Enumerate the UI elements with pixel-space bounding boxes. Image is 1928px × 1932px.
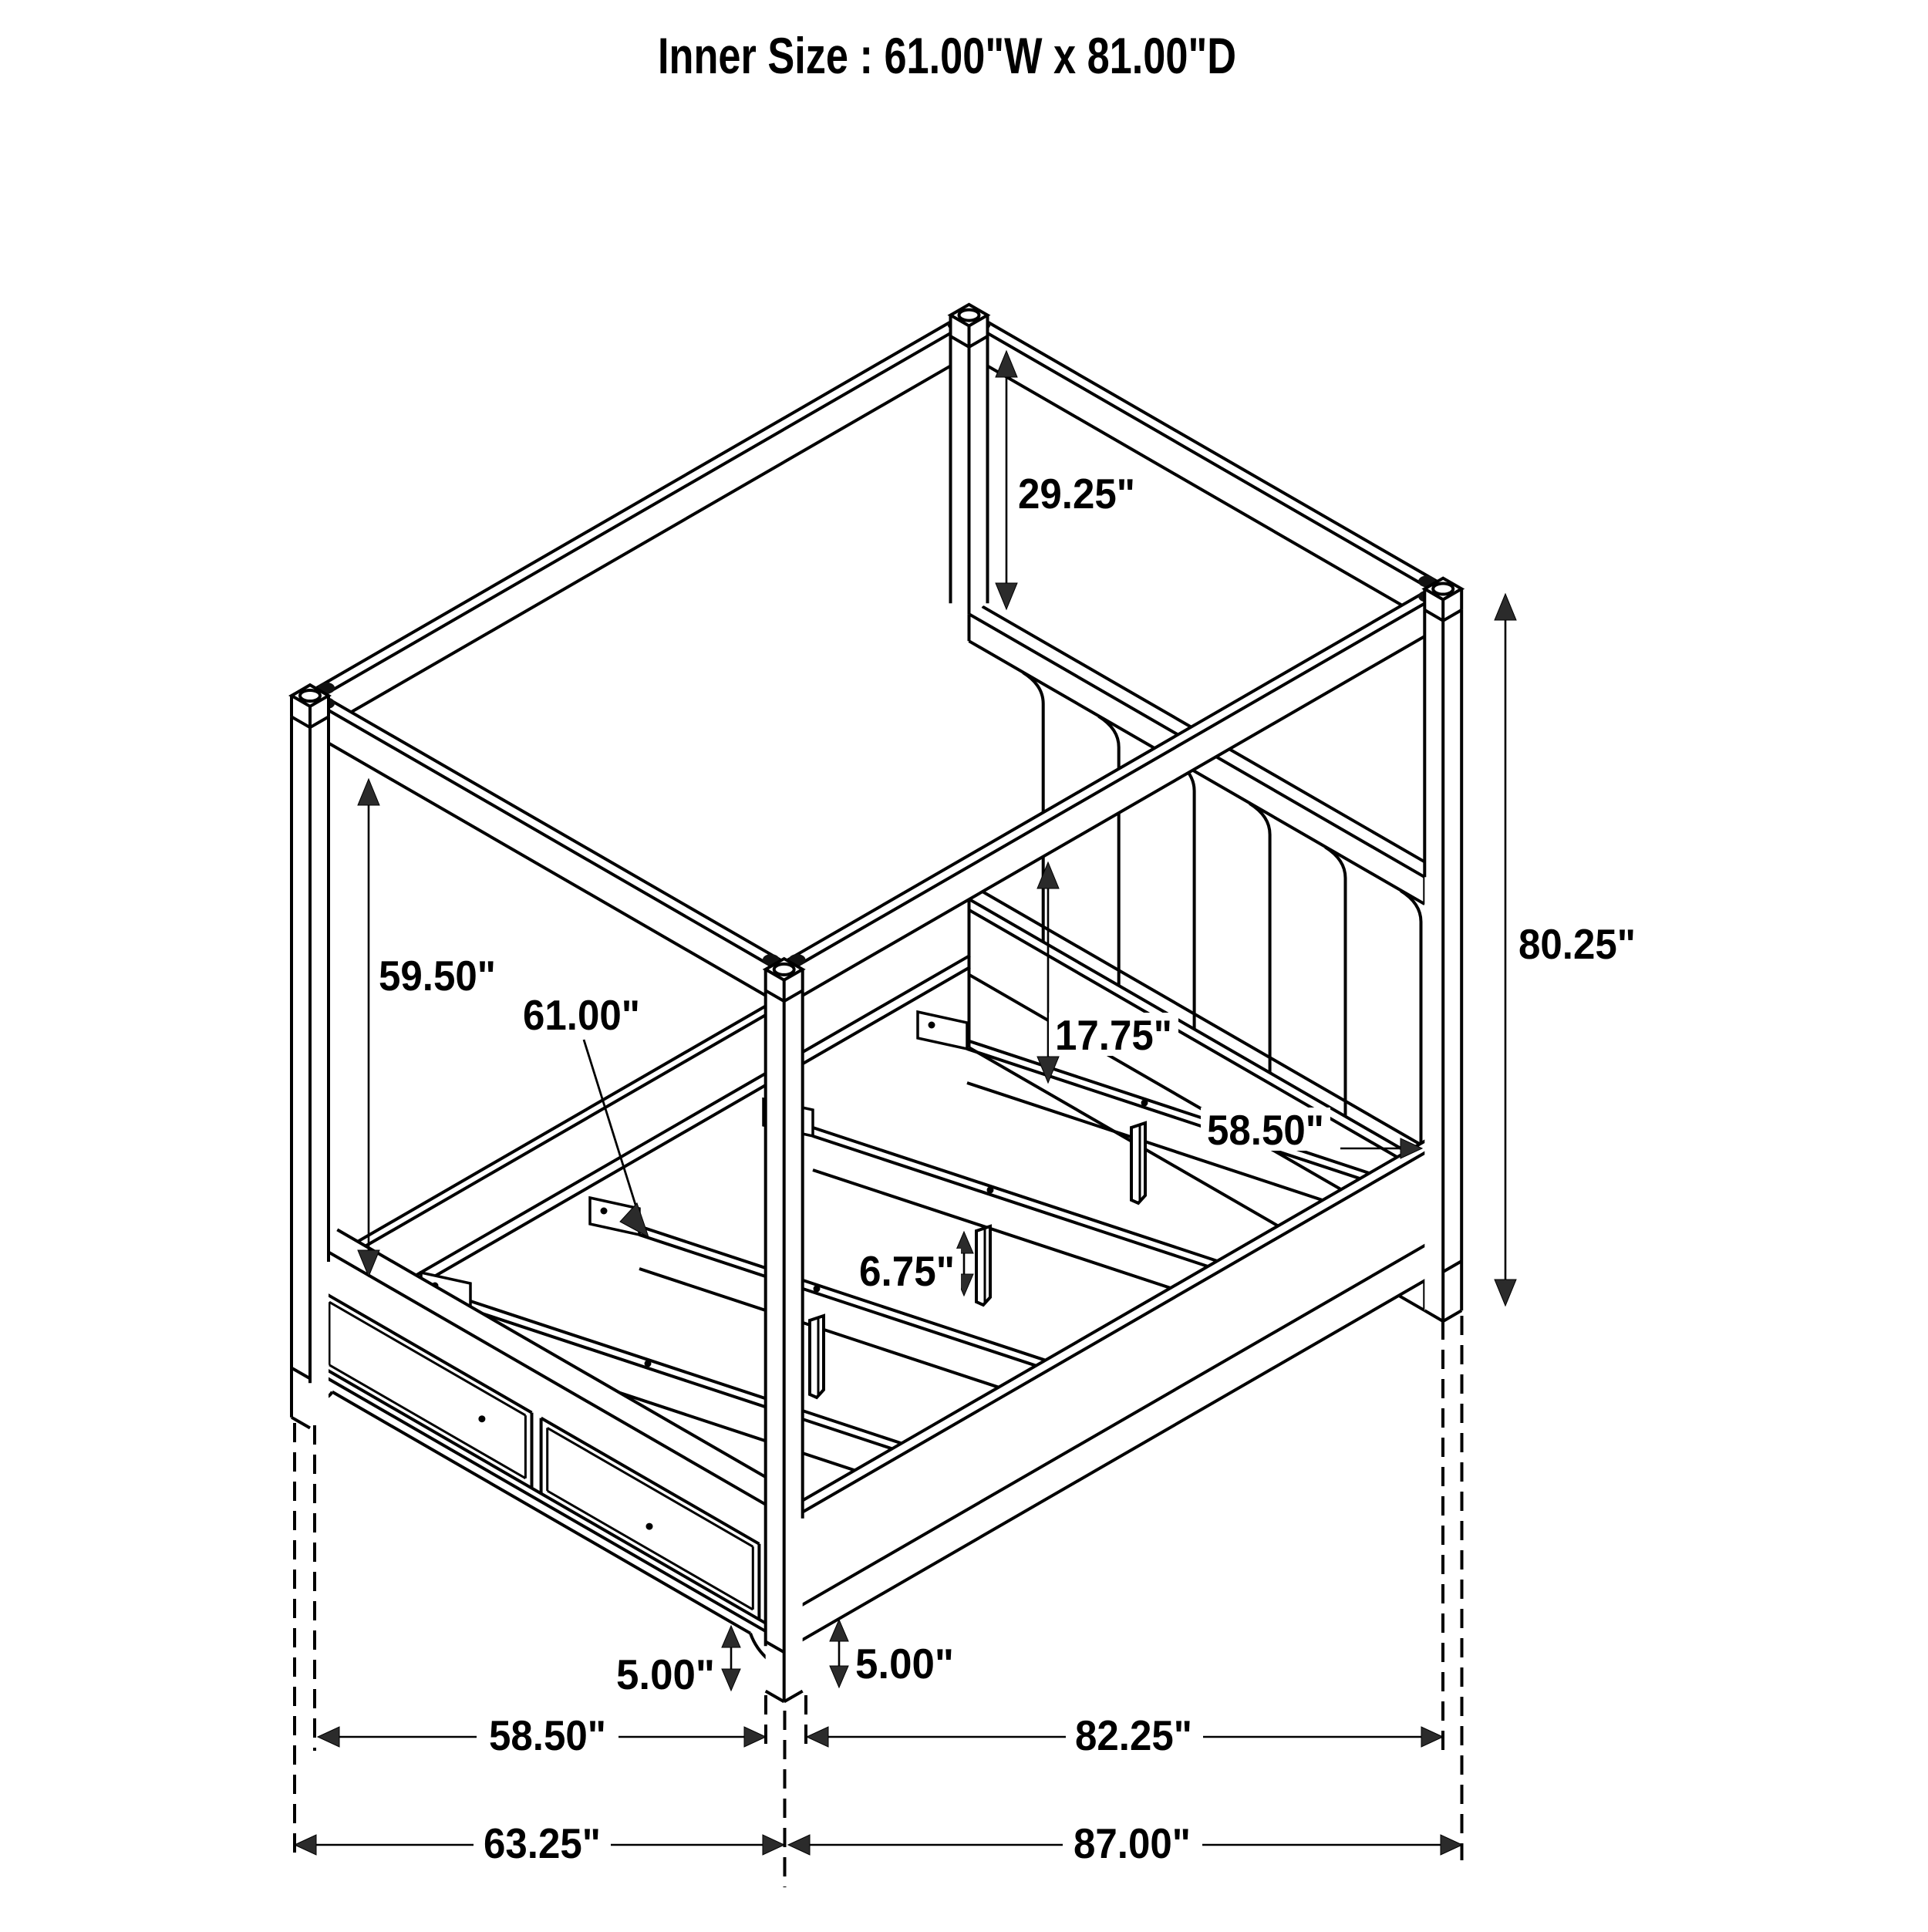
- svg-text:29.25": 29.25": [1018, 470, 1135, 518]
- svg-text:58.50": 58.50": [1207, 1106, 1324, 1154]
- svg-text:82.25": 82.25": [1075, 1711, 1192, 1759]
- svg-text:6.75": 6.75": [859, 1247, 955, 1295]
- svg-text:17.75": 17.75": [1055, 1011, 1172, 1059]
- svg-text:59.50": 59.50": [379, 952, 496, 1000]
- svg-text:58.50": 58.50": [489, 1711, 606, 1759]
- svg-text:80.25": 80.25": [1518, 920, 1636, 968]
- svg-text:61.00": 61.00": [523, 991, 640, 1039]
- svg-text:5.00": 5.00": [616, 1650, 715, 1698]
- svg-text:Inner Size : 61.00"W x 81.00"D: Inner Size : 61.00"W x 81.00"D: [658, 27, 1236, 84]
- svg-text:87.00": 87.00": [1074, 1819, 1191, 1867]
- svg-text:5.00": 5.00": [855, 1640, 954, 1688]
- svg-text:63.25": 63.25": [484, 1819, 601, 1867]
